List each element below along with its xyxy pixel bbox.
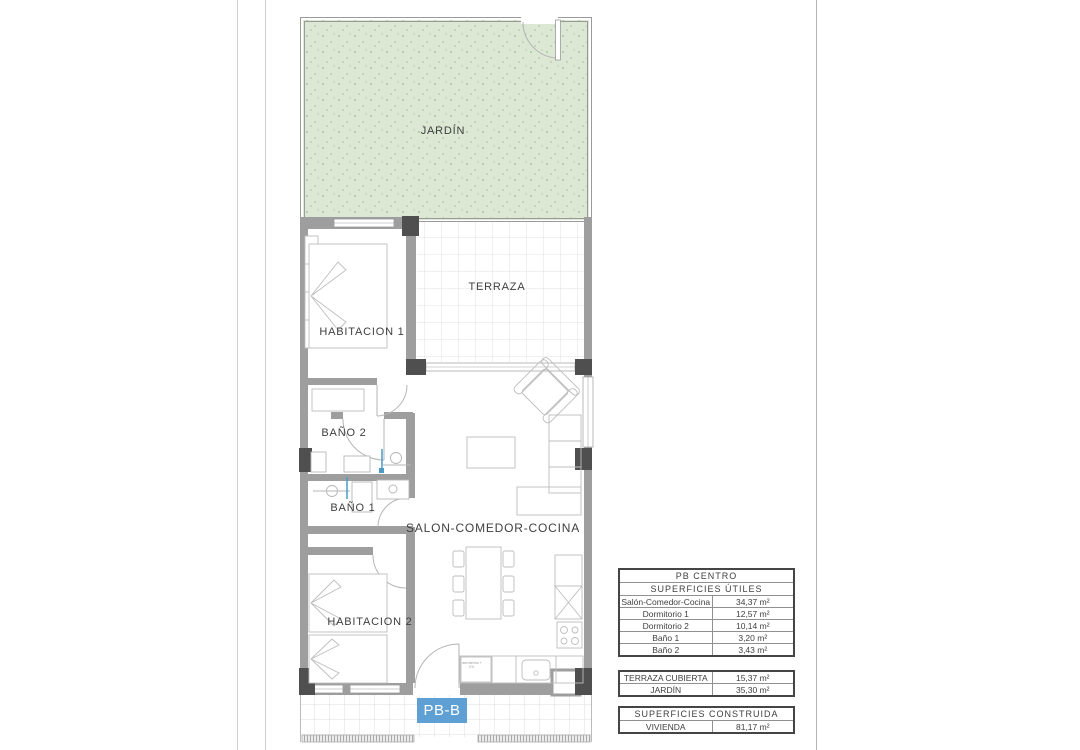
garden-gate-leaf xyxy=(556,20,561,60)
table-row: Dormitorio 2 10,14 m² xyxy=(619,620,794,632)
table-subtitle: SUPERFICIES ÚTILES xyxy=(619,583,794,596)
bano2-door-arc-icon xyxy=(343,419,384,460)
kitchen-hob xyxy=(557,622,582,648)
bano1-door-arc-icon xyxy=(378,498,407,527)
floor-badge: PB-B xyxy=(417,698,467,723)
walkway-hatch-right xyxy=(478,735,590,742)
label-salon: SALON-COMEDOR-COCINA xyxy=(406,521,580,535)
kitchen-tall-unit xyxy=(555,555,582,586)
coffee-table xyxy=(467,437,515,468)
table-superficies-construida: SUPERFICIES CONSTRUIDA VIVIENDA 81,17 m² xyxy=(618,706,795,734)
label-terraza: TERRAZA xyxy=(469,281,526,293)
table-superficies-utiles: PB CENTRO SUPERFICIES ÚTILES Salón-Comed… xyxy=(618,568,795,657)
label-habitacion1: HABITACION 1 xyxy=(319,326,404,338)
label-aerotermo: aerotermo + EV. xyxy=(461,658,483,679)
garden-area xyxy=(301,15,592,222)
table-row: TERRAZA CUBIERTA 15,37 m² xyxy=(619,671,794,684)
shower-head-icon xyxy=(391,453,402,464)
table-row: Dormitorio 1 12,57 m² xyxy=(619,608,794,620)
dining-table xyxy=(466,547,501,619)
table-row: Baño 1 3,20 m² xyxy=(619,632,794,644)
table-row: Salón-Comedor-Cocina 34,37 m² xyxy=(619,596,794,608)
vanity-bano2 xyxy=(344,456,370,472)
areas-panel: PB CENTRO SUPERFICIES ÚTILES Salón-Comed… xyxy=(618,568,793,734)
bed2-hab2 xyxy=(309,635,387,683)
table-row: Baño 2 3,43 m² xyxy=(619,644,794,657)
floor-plan-drawing xyxy=(0,0,1080,750)
toilet-bano2 xyxy=(311,452,326,472)
label-bano1: BAÑO 1 xyxy=(330,502,375,514)
floor-plan-page: JARDÍN TERRAZA HABITACION 1 BAÑO 2 BAÑO … xyxy=(0,0,1080,750)
label-bano2: BAÑO 2 xyxy=(321,427,366,439)
label-habitacion2: HABITACION 2 xyxy=(327,616,412,628)
table-exteriores: TERRAZA CUBIERTA 15,37 m² JARDÍN 35,30 m… xyxy=(618,670,795,697)
table-row: JARDÍN 35,30 m² xyxy=(619,684,794,697)
kitchen-sink xyxy=(522,660,550,680)
table-title: SUPERFICIES CONSTRUIDA xyxy=(619,707,794,721)
table-row: VIVIENDA 81,17 m² xyxy=(619,721,794,734)
entrance-door-arc-icon xyxy=(415,644,459,688)
walkway-hatch-left xyxy=(302,735,414,742)
closet-vestibule xyxy=(312,389,364,411)
sink-bano1 xyxy=(377,480,409,499)
hab1-door-arc-icon xyxy=(377,385,407,416)
label-jardin: JARDÍN xyxy=(421,125,466,137)
table-title: PB CENTRO xyxy=(619,569,794,583)
